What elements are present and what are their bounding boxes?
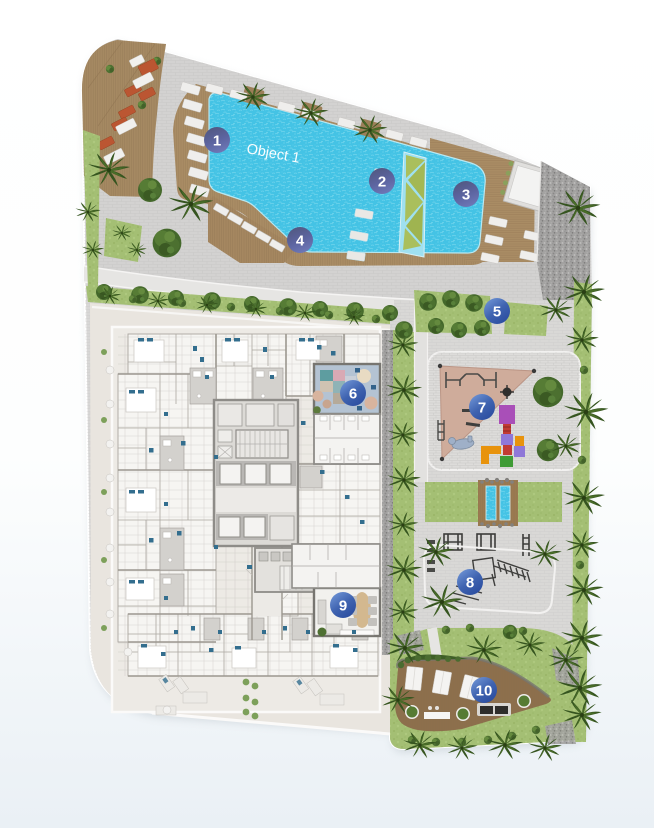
svg-text:6: 6 xyxy=(349,386,357,403)
svg-text:10: 10 xyxy=(476,683,493,700)
svg-text:9: 9 xyxy=(339,598,347,615)
svg-text:4: 4 xyxy=(296,233,305,250)
svg-text:1: 1 xyxy=(213,133,221,150)
svg-text:7: 7 xyxy=(478,400,486,417)
svg-text:3: 3 xyxy=(462,187,470,204)
svg-text:2: 2 xyxy=(378,174,386,191)
svg-text:8: 8 xyxy=(466,575,474,592)
svg-text:5: 5 xyxy=(493,304,501,321)
